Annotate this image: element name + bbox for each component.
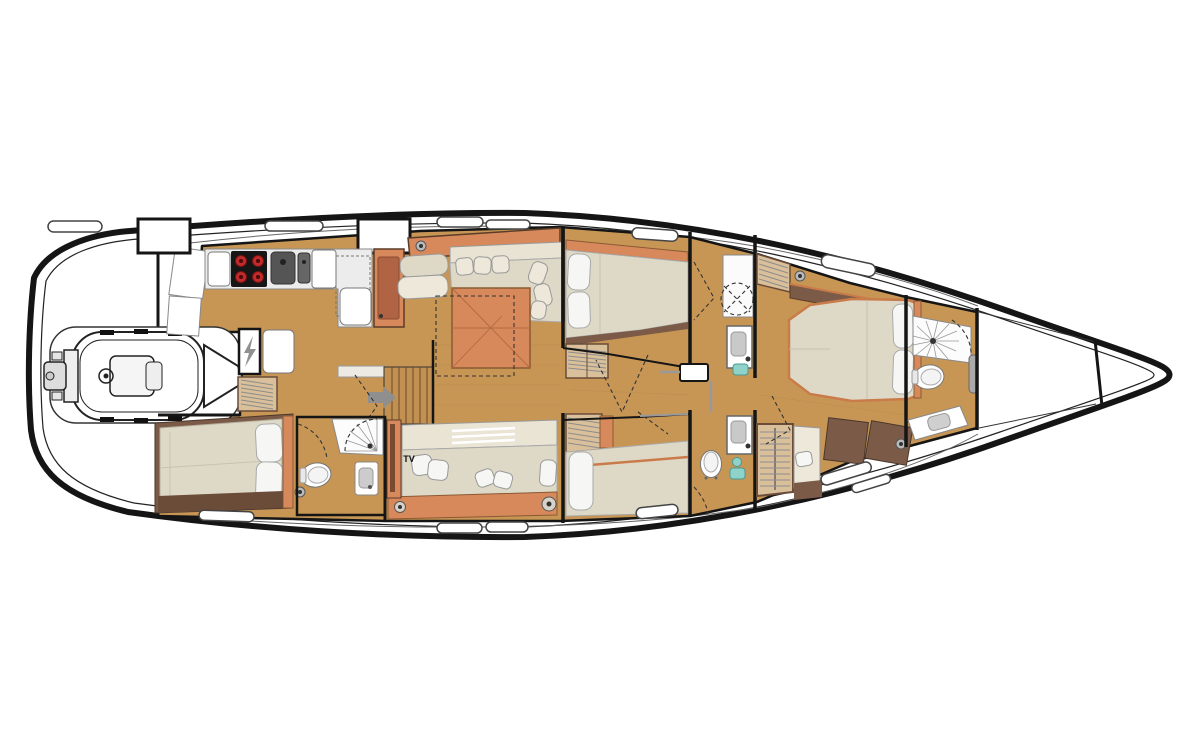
deck-hatch bbox=[632, 227, 679, 241]
cooktop bbox=[231, 251, 267, 287]
locker-door bbox=[600, 416, 613, 448]
seat-base bbox=[794, 480, 822, 500]
throw-pillow bbox=[492, 256, 510, 274]
tv-label: TV bbox=[403, 454, 415, 464]
tv-screen bbox=[390, 424, 395, 492]
deck-hatch bbox=[437, 523, 482, 533]
throw-pillow bbox=[427, 459, 449, 481]
sofa-base-trim bbox=[388, 492, 557, 519]
motor-bracket bbox=[52, 352, 62, 360]
propeller bbox=[46, 372, 54, 380]
toilet-tank bbox=[912, 370, 918, 384]
burner-center bbox=[239, 275, 243, 279]
pillow bbox=[569, 452, 593, 510]
throw-pillow bbox=[530, 300, 548, 320]
companionway-hatch bbox=[358, 219, 410, 253]
basin bbox=[731, 421, 746, 443]
burner-center bbox=[256, 259, 260, 263]
saloon-sofa: TV bbox=[385, 418, 557, 520]
dinghy-seat bbox=[146, 362, 162, 390]
motor-bracket bbox=[52, 392, 62, 400]
pillow bbox=[567, 253, 591, 290]
sofa-chaise-cushion bbox=[397, 275, 448, 300]
pillow bbox=[892, 304, 914, 349]
toilet-tank bbox=[300, 468, 306, 483]
cockpit-seat bbox=[167, 296, 202, 336]
deck-hatch bbox=[199, 510, 254, 522]
burner-center bbox=[239, 259, 243, 263]
galley-wardrobe bbox=[238, 377, 277, 411]
layout-drawing: TV bbox=[0, 0, 1200, 750]
pillow bbox=[892, 350, 914, 395]
throw-pillow bbox=[455, 257, 474, 276]
deck-hatch bbox=[48, 221, 102, 232]
deck-hatch bbox=[265, 221, 323, 231]
galley-sink bbox=[271, 252, 295, 284]
speaker-center bbox=[899, 442, 903, 446]
corridor-step bbox=[680, 364, 708, 381]
toiletry-item bbox=[730, 468, 745, 479]
wheel-hub bbox=[104, 374, 108, 378]
deck-hatch bbox=[486, 220, 530, 229]
basin bbox=[359, 468, 373, 488]
burner-center bbox=[256, 275, 260, 279]
mid-port-sink bbox=[727, 326, 752, 375]
owner-wardrobe-bottom bbox=[757, 424, 793, 496]
pillow bbox=[795, 451, 813, 468]
counter-segment bbox=[208, 252, 230, 286]
companionway-ledge bbox=[338, 366, 385, 377]
deck-hatch bbox=[486, 522, 528, 532]
cabinet-knob bbox=[379, 314, 383, 318]
speaker-center bbox=[398, 505, 402, 509]
pillow bbox=[255, 423, 283, 462]
counter-segment bbox=[340, 288, 371, 325]
pillow bbox=[567, 292, 590, 329]
owner-island-bed bbox=[789, 299, 921, 401]
faucet bbox=[746, 357, 751, 362]
owner-seat bbox=[794, 426, 822, 500]
shower-drain bbox=[930, 338, 936, 344]
basin bbox=[731, 332, 746, 356]
speaker-center bbox=[547, 502, 552, 507]
sink-drain bbox=[302, 260, 306, 264]
faucet bbox=[746, 444, 751, 449]
deck-hatch bbox=[437, 217, 483, 227]
faucet bbox=[368, 485, 372, 489]
owner-cabinet bbox=[824, 418, 869, 465]
cockpit-seat bbox=[169, 247, 209, 299]
sink-drain bbox=[280, 259, 286, 265]
speaker-center bbox=[298, 490, 302, 494]
throw-pillow bbox=[473, 256, 491, 274]
sofa-chaise-cushion bbox=[399, 253, 448, 277]
shower-drain bbox=[368, 444, 373, 449]
headboard-trim bbox=[283, 416, 293, 508]
speaker-center bbox=[798, 274, 802, 278]
aft-head-sink bbox=[355, 462, 378, 495]
throw-pillow bbox=[539, 459, 557, 486]
galley-sink-small bbox=[298, 253, 310, 283]
counter-segment bbox=[312, 250, 336, 288]
yacht-layout-plan: TV bbox=[0, 0, 1200, 750]
locker-door bbox=[263, 330, 294, 373]
cockpit-arch bbox=[138, 219, 190, 253]
electrical-panel bbox=[239, 329, 260, 374]
toiletry-item bbox=[733, 458, 742, 467]
speaker-center bbox=[419, 244, 423, 248]
toiletry-item bbox=[733, 364, 748, 375]
